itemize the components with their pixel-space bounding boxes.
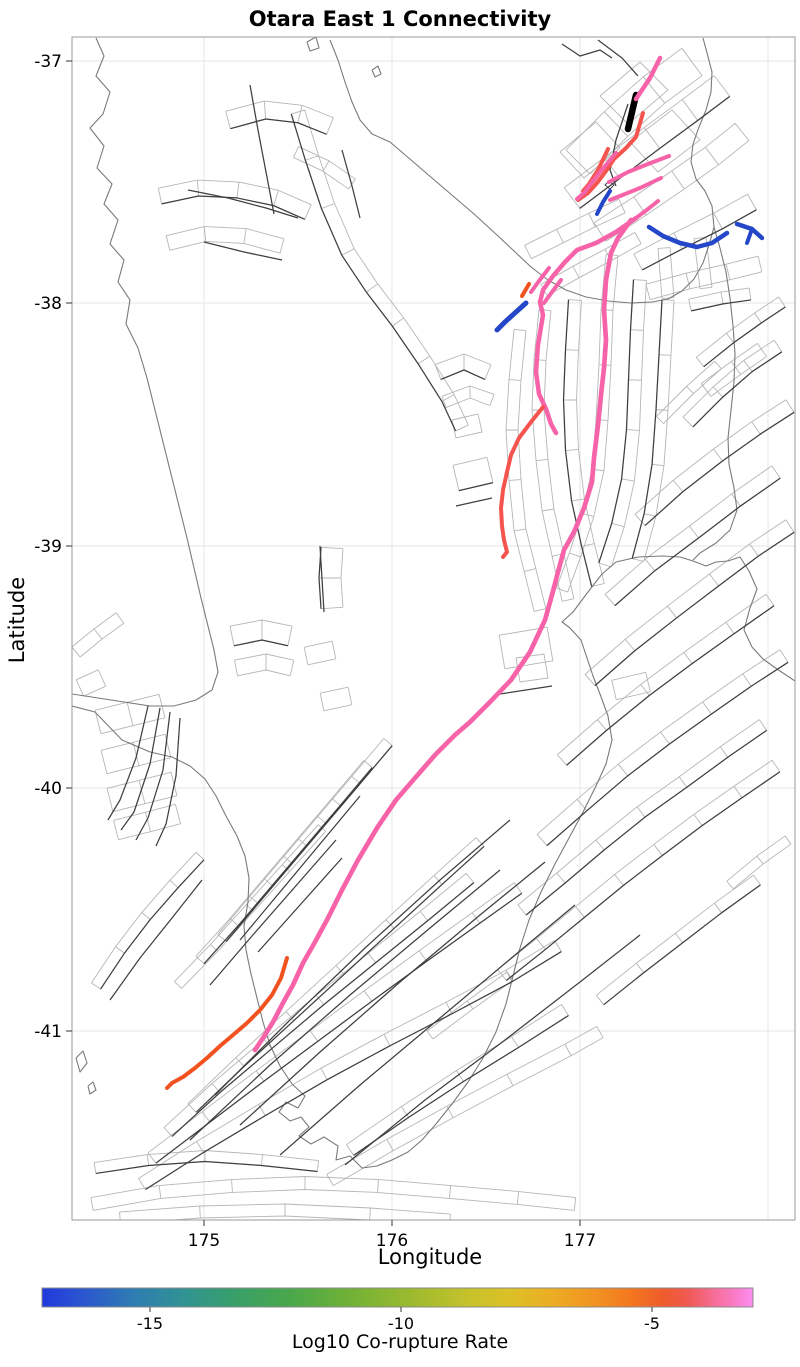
- connectivity-map-figure: Otara East 1 Connectivity 175176177-37-3…: [0, 0, 800, 1367]
- fault-trace: [456, 498, 492, 506]
- fault-trace: [342, 150, 360, 218]
- coastline-path: [330, 40, 390, 142]
- fault-patch-chain: [319, 547, 343, 608]
- fault-patch-chain: [498, 760, 780, 980]
- fault-patch-chain: [226, 101, 334, 134]
- fault-trace: [693, 352, 782, 427]
- map-plot: Otara East 1 Connectivity 175176177-37-3…: [0, 0, 800, 1367]
- fault-patch-chain: [230, 620, 292, 646]
- fault-trace: [441, 370, 485, 379]
- x-tick-label: 175: [188, 1231, 220, 1251]
- coastline-path: [390, 38, 714, 303]
- fault-patch-chain: [506, 329, 546, 611]
- fault-patch-chain: [234, 654, 293, 676]
- fault-trace: [101, 860, 204, 989]
- fault-patch-chain: [435, 354, 491, 379]
- fault-patch-chain: [689, 288, 751, 311]
- fault-trace: [156, 893, 522, 1163]
- plot-border: [72, 37, 795, 1220]
- y-tick-label: -41: [34, 1022, 62, 1042]
- fault-patch-chain: [76, 670, 105, 696]
- fault-patch-chain: [95, 694, 165, 733]
- gridlines: [72, 37, 795, 1220]
- fault-patch-chain: [727, 836, 791, 889]
- fault-patch-quad: [560, 122, 620, 178]
- fault-patch-chain: [304, 641, 336, 665]
- fault-trace-layer: [96, 40, 794, 1189]
- fault-trace: [632, 300, 662, 559]
- fault-patch-chain: [612, 672, 651, 699]
- figure-title: Otara East 1 Connectivity: [249, 7, 552, 31]
- coastline-path: [372, 66, 381, 77]
- fault-trace: [459, 483, 493, 491]
- coastline-path: [72, 38, 218, 706]
- fault-trace: [280, 905, 575, 1155]
- x-tick-label: 177: [564, 1231, 596, 1251]
- fault-patch-chain: [656, 361, 721, 423]
- orange-long: [167, 958, 287, 1088]
- fault-trace: [547, 662, 788, 845]
- fault-patch-chain: [594, 123, 749, 241]
- fault-patch-chain: [346, 1005, 568, 1156]
- pink-strand-2: [610, 178, 661, 200]
- fault-patch-chain: [139, 940, 562, 1189]
- fault-trace: [500, 686, 552, 694]
- colorbar-gradient: [42, 1288, 753, 1307]
- colorbar-tick-label: -15: [137, 1314, 163, 1333]
- fault-patch-chain: [683, 340, 782, 427]
- fault-patch-chain: [72, 613, 124, 657]
- y-tick-label: -38: [34, 294, 62, 314]
- blue-fork-branch: [747, 229, 752, 243]
- x-axis-label: Longitude: [378, 1245, 482, 1269]
- fault-patch-chain: [320, 687, 352, 711]
- colorbar-tick-label: -5: [644, 1314, 660, 1333]
- fault-patch-chain: [605, 466, 780, 606]
- fault-patch-chain: [518, 720, 767, 915]
- blue-southwest: [497, 303, 526, 330]
- fault-patch-chain: [327, 1026, 603, 1185]
- fault-trace: [210, 840, 336, 985]
- fault-patch-chain: [166, 227, 284, 254]
- fault-trace: [136, 712, 170, 840]
- fault-trace: [145, 952, 561, 1190]
- coastline-layer: [72, 37, 795, 1168]
- fault-patch-chain: [596, 875, 760, 1005]
- fault-trace: [645, 412, 794, 525]
- fault-trace: [204, 768, 372, 964]
- fault-patch-layer: [72, 48, 794, 1226]
- fault-trace: [354, 1015, 569, 1155]
- fault-patch-chain: [646, 256, 762, 299]
- coastline-path: [88, 1082, 96, 1094]
- coastline-path: [72, 706, 422, 1168]
- fault-patch-chain: [537, 650, 788, 846]
- fault-trace: [562, 44, 612, 58]
- fault-patch-chain: [164, 873, 474, 1136]
- fault-trace: [506, 772, 780, 981]
- fault-trace: [598, 40, 638, 76]
- fault-patch-chain: [114, 804, 181, 839]
- fault-patch-chain: [91, 1177, 576, 1211]
- fault-trace: [240, 796, 360, 940]
- coastline-path: [307, 37, 319, 51]
- orange-small: [522, 284, 529, 296]
- fault-trace: [96, 1162, 318, 1174]
- y-axis-label: Latitude: [5, 577, 29, 663]
- salmon-long: [501, 407, 543, 557]
- colorbar-label: Log10 Co-rupture Rate: [292, 1331, 508, 1353]
- fault-trace: [567, 606, 774, 766]
- y-tick-label: -39: [34, 537, 62, 557]
- coastline-path: [76, 1051, 87, 1072]
- fault-trace: [526, 730, 767, 915]
- fault-patch-chain: [556, 254, 618, 592]
- fault-patch-chain: [188, 838, 484, 1113]
- fault-patch-chain: [291, 110, 468, 431]
- fault-trace: [691, 300, 751, 311]
- fault-trace: [291, 114, 455, 431]
- y-tick-label: -40: [34, 779, 62, 799]
- fault-patch-chain: [453, 457, 493, 490]
- y-tick-label: -37: [34, 52, 62, 72]
- colorbar: -15-10-5: [42, 1288, 753, 1333]
- fault-trace: [250, 85, 274, 214]
- fault-trace: [172, 883, 474, 1137]
- fault-patch-chain: [499, 627, 553, 669]
- fault-trace: [230, 119, 326, 134]
- fault-patch-chain: [120, 1204, 451, 1226]
- fault-patch-chain: [107, 772, 177, 811]
- fault-trace: [234, 640, 288, 646]
